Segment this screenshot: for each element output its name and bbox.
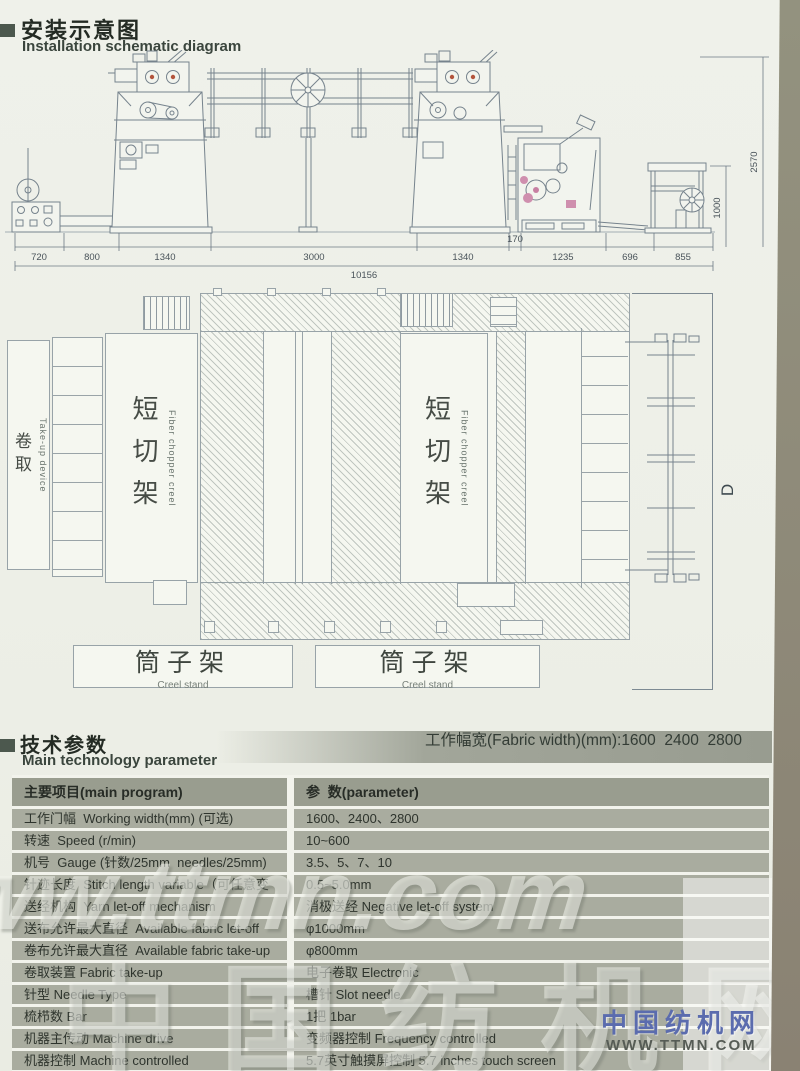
- section-bullet-icon: [0, 739, 15, 752]
- svg-text:855: 855: [675, 252, 691, 263]
- top-view-diagram: 卷取 Take-up device 短切架 Fiber chopper cree…: [0, 285, 800, 735]
- table-row: 转速 Speed (r/min)10~600: [12, 831, 769, 850]
- param-name: 机号 Gauge (针数/25mm needles/25mm): [12, 853, 287, 872]
- shaft-assembly: [625, 330, 710, 585]
- svg-text:1235: 1235: [552, 252, 573, 263]
- svg-text:696: 696: [622, 252, 638, 263]
- section-bullet-icon: [0, 24, 15, 37]
- table-header-row: 主要项目(main program) 参 数(parameter): [12, 778, 769, 806]
- chopper2-label-zh: 短切架: [419, 395, 456, 521]
- svg-text:3000: 3000: [303, 252, 324, 263]
- step-block: [490, 297, 517, 327]
- takeup-label-box: 卷取 Take-up device: [7, 340, 50, 570]
- dim-label-d: D: [718, 484, 738, 496]
- table-row: 机号 Gauge (针数/25mm needles/25mm)3.5、5、7、1…: [12, 853, 769, 872]
- takeup-label-zh: 卷取: [9, 432, 34, 478]
- table-row: 卷布允许最大直径 Available fabric take-up diamet…: [12, 941, 769, 960]
- dim-line-d: [712, 293, 713, 690]
- table-row: 送布允许最大直径 Available fabric let-off diamet…: [12, 919, 769, 938]
- ttmn-logo-cn: 中国纺机网: [601, 1003, 761, 1040]
- svg-text:720: 720: [31, 252, 47, 263]
- svg-text:2570: 2570: [749, 151, 760, 172]
- creel1-label-zh: 筒子架: [135, 643, 231, 679]
- param-name: 送经机构 Yarn let-off mechanism: [12, 897, 287, 916]
- param-name: 工作门幅 Working width(mm) (可选): [12, 809, 287, 828]
- svg-text:1340: 1340: [452, 252, 473, 263]
- param-name: 卷布允许最大直径 Available fabric take-up diamet…: [12, 941, 287, 960]
- side-view-schematic: 720 800 1340 3000 1340 170 1235 696 855 …: [0, 50, 776, 286]
- svg-text:800: 800: [84, 252, 100, 263]
- catalog-page: 安装示意图 Installation schematic diagram: [0, 0, 800, 1071]
- param-value: 1600、2400、2800: [294, 809, 769, 828]
- chopper2-label-en: Fiber chopper creel: [460, 410, 470, 507]
- params-section-title-en: Main technology parameter: [22, 752, 217, 769]
- param-name: 转速 Speed (r/min): [12, 831, 287, 850]
- take-up-unit: [12, 148, 114, 232]
- chopper-unit: [504, 115, 600, 232]
- table-row: 送经机构 Yarn let-off mechanism消极送经 Negative…: [12, 897, 769, 916]
- creel1-label-en: Creel stand: [157, 680, 208, 691]
- fabric-width-note: 工作幅宽(Fabric width)(mm):1600 2400 2800: [407, 730, 742, 751]
- takeup-label-en: Take-up device: [38, 418, 48, 493]
- table-row: 卷取装置 Fabric take-up电子卷取 Electronic: [12, 963, 769, 982]
- param-name: 机器主传动 Machine drive: [12, 1029, 287, 1048]
- param-name: 针型 Needle Type: [12, 985, 287, 1004]
- winder-unit: [645, 163, 711, 233]
- chopper1-label-en: Fiber chopper creel: [167, 410, 177, 507]
- svg-text:170: 170: [507, 234, 523, 245]
- creel-stand-box-2: 筒子架 Creel stand: [315, 645, 540, 688]
- ladder-structure: [143, 296, 190, 330]
- chopper-creel-box-1: 短切架 Fiber chopper creel: [105, 333, 198, 583]
- creel-stand-box-1: 筒子架 Creel stand: [73, 645, 293, 688]
- svg-text:10156: 10156: [351, 270, 377, 281]
- dim-extension-top: [632, 293, 713, 294]
- ttmn-logo-url: WWW.TTMN.COM: [606, 1037, 757, 1054]
- param-name: 针迹长度 Stitch length variable（可任意变动）: [12, 875, 287, 894]
- chopper1-label-zh: 短切架: [126, 395, 163, 521]
- header-main-program: 主要项目(main program): [12, 778, 287, 806]
- creel-frame: [205, 68, 417, 232]
- knitting-machine-1: [108, 50, 212, 233]
- param-name: 机器控制 Machine controlled: [12, 1051, 287, 1070]
- chopper-creel-box-2: 短切架 Fiber chopper creel: [400, 333, 488, 583]
- table-row: 工作门幅 Working width(mm) (可选)1600、2400、280…: [12, 809, 769, 828]
- knitting-machine-2: [410, 50, 516, 233]
- param-value: 10~600: [294, 831, 769, 850]
- table-row: 针迹长度 Stitch length variable（可任意变动）0.5~5.…: [12, 875, 769, 894]
- segment-column: [52, 337, 103, 577]
- ladder-structure: [400, 293, 453, 327]
- header-parameter: 参 数(parameter): [294, 778, 769, 806]
- param-value: 3.5、5、7、10: [294, 853, 769, 872]
- creel2-label-zh: 筒子架: [379, 643, 475, 679]
- param-name: 卷取装置 Fabric take-up: [12, 963, 287, 982]
- svg-text:1000: 1000: [712, 197, 723, 218]
- svg-text:1340: 1340: [154, 252, 175, 263]
- param-name: 梳栉数 Bar: [12, 1007, 287, 1026]
- param-name: 送布允许最大直径 Available fabric let-off diamet…: [12, 919, 287, 938]
- table-row: 针型 Needle Type槽针 Slot needle: [12, 985, 769, 1004]
